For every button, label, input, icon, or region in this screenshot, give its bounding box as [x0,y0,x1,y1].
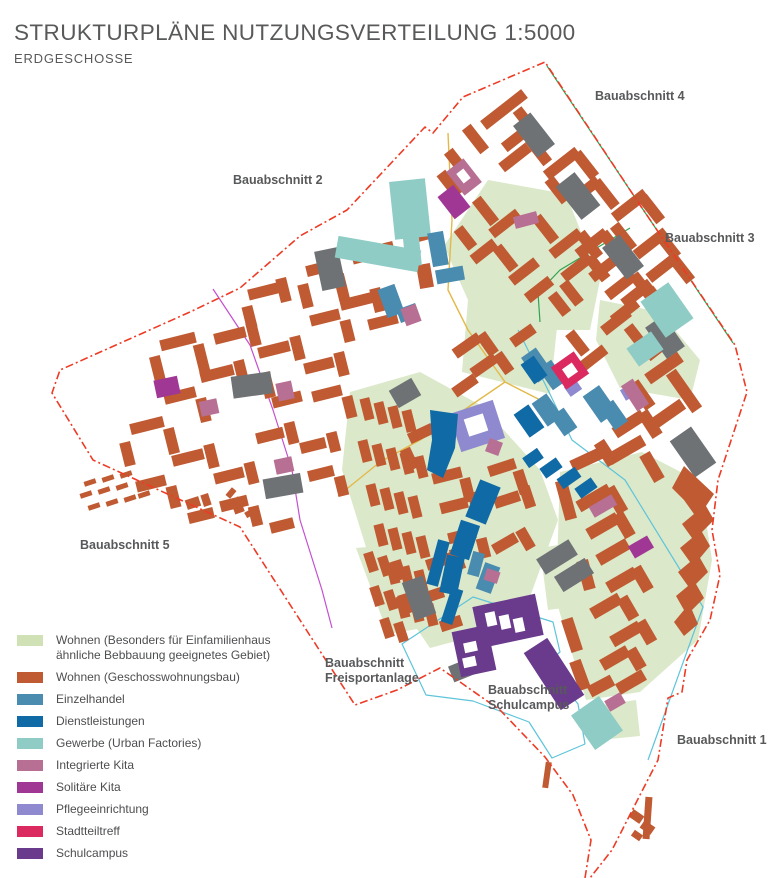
header: STRUKTURPLÄNE NUTZUNGSVERTEILUNG 1:5000 … [14,20,576,66]
building [640,820,656,835]
building [565,329,590,356]
area-label-line: Bauabschnitt 2 [233,173,323,188]
legend-row: Stadtteiltreff [17,824,271,839]
building [307,465,335,482]
legend-label: Wohnen (Geschosswohnungsbau) [56,670,240,685]
legend-label: Pflegeeinrichtung [56,802,149,817]
legend-row: Schulcampus [17,846,271,861]
legend-swatch [17,738,43,749]
building [326,431,342,453]
building [427,231,449,267]
building [303,357,335,375]
building [670,427,717,478]
legend-swatch [17,760,43,771]
building [120,470,133,478]
legend-swatch [17,826,43,837]
building [200,493,211,507]
building [255,427,285,444]
building [80,490,93,498]
legend-label: Einzelhandel [56,692,125,707]
page-title: STRUKTURPLÄNE NUTZUNGSVERTEILUNG 1:5000 [14,20,576,46]
legend-swatch [17,848,43,859]
legend-label-line: Stadtteiltreff [56,824,120,839]
legend-swatch [17,694,43,705]
building [416,263,434,289]
building [225,487,236,499]
building [462,124,489,154]
legend-label: Dienstleistungen [56,714,145,729]
area-label: Bauabschnitt 1 [677,733,767,748]
building [129,416,165,435]
legend-label-line: Wohnen (Besonders für Einfamilienhaus [56,633,271,648]
building [498,143,532,173]
building [193,343,210,373]
building [166,485,182,509]
building [106,498,119,506]
building [88,502,101,510]
building [539,457,562,478]
legend-label-line: Solitäre Kita [56,780,121,795]
legend-label: Wohnen (Besonders für Einfamilienhausähn… [56,633,271,663]
legend-swatch [17,716,43,727]
building [309,309,341,327]
building [124,494,137,502]
legend-swatch [17,804,43,815]
building [451,374,479,398]
area-label: BauabschnittFreisportanlage [325,656,419,686]
building [668,254,695,284]
area-label-line: Bauabschnitt 1 [677,733,767,748]
building [263,473,304,499]
building [631,830,643,841]
building [284,421,300,445]
legend-label-line: Pflegeeinrichtung [56,802,149,817]
building [289,335,305,361]
legend-row: Solitäre Kita [17,780,271,795]
building [159,332,197,351]
building [135,475,167,493]
building [163,427,180,455]
building [213,467,245,485]
legend-row: Einzelhandel [17,692,271,707]
building [119,441,135,467]
legend-swatch [17,635,43,646]
building [245,321,261,347]
area-label-line: Bauabschnitt [488,683,569,698]
building [247,283,279,301]
area-label: Bauabschnitt 5 [80,538,170,553]
building [98,486,111,494]
building [244,461,260,485]
building [269,517,295,533]
legend-swatch [17,672,43,683]
legend-swatch [17,782,43,793]
legend-label: Integrierte Kita [56,758,134,773]
area-label-line: Bauabschnitt 5 [80,538,170,553]
area-label: Bauabschnitt 2 [233,173,323,188]
area-label: Bauabschnitt 4 [595,89,685,104]
building [84,478,97,486]
legend-label-line: Einzelhandel [56,692,125,707]
legend-label: Stadtteiltreff [56,824,120,839]
building [333,351,349,377]
building [102,474,115,482]
building [116,482,129,490]
legend-label: Solitäre Kita [56,780,121,795]
legend-row: Pflegeeinrichtung [17,802,271,817]
legend-label-line: Wohnen (Geschosswohnungsbau) [56,670,240,685]
building [213,326,247,344]
legend: Wohnen (Besonders für Einfamilienhausähn… [17,633,271,868]
area-label: Bauabschnitt 3 [665,231,755,246]
area-label-line: Schulcampus [488,698,569,713]
legend-label-line: Integrierte Kita [56,758,134,773]
building [311,385,343,403]
legend-label: Schulcampus [56,846,128,861]
area-label: BauabschnittSchulcampus [488,683,569,713]
legend-label: Gewerbe (Urban Factories) [56,736,201,751]
legend-label-line: Schulcampus [56,846,128,861]
area-label-line: Bauabschnitt [325,656,419,671]
legend-row: Integrierte Kita [17,758,271,773]
area-label-line: Freisportanlage [325,671,419,686]
area-label-line: Bauabschnitt 4 [595,89,685,104]
legend-row: Dienstleistungen [17,714,271,729]
plan-canvas: STRUKTURPLÄNE NUTZUNGSVERTEILUNG 1:5000 … [0,0,780,878]
building [297,283,313,309]
legend-row: Wohnen (Besonders für Einfamilienhausähn… [17,633,271,663]
legend-label-line: ähnliche Bebbauung geeignetes Gebiet) [56,648,271,663]
legend-row: Wohnen (Geschosswohnungsbau) [17,670,271,685]
building [274,456,295,474]
area-label-line: Bauabschnitt 3 [665,231,755,246]
legend-row: Gewerbe (Urban Factories) [17,736,271,751]
building [542,762,552,789]
legend-label-line: Dienstleistungen [56,714,145,729]
page-subtitle: ERDGESCHOSSE [14,51,576,66]
building [299,437,327,454]
building [257,340,291,358]
legend-label-line: Gewerbe (Urban Factories) [56,736,201,751]
building [203,443,219,469]
building [629,809,645,824]
building [340,319,356,343]
